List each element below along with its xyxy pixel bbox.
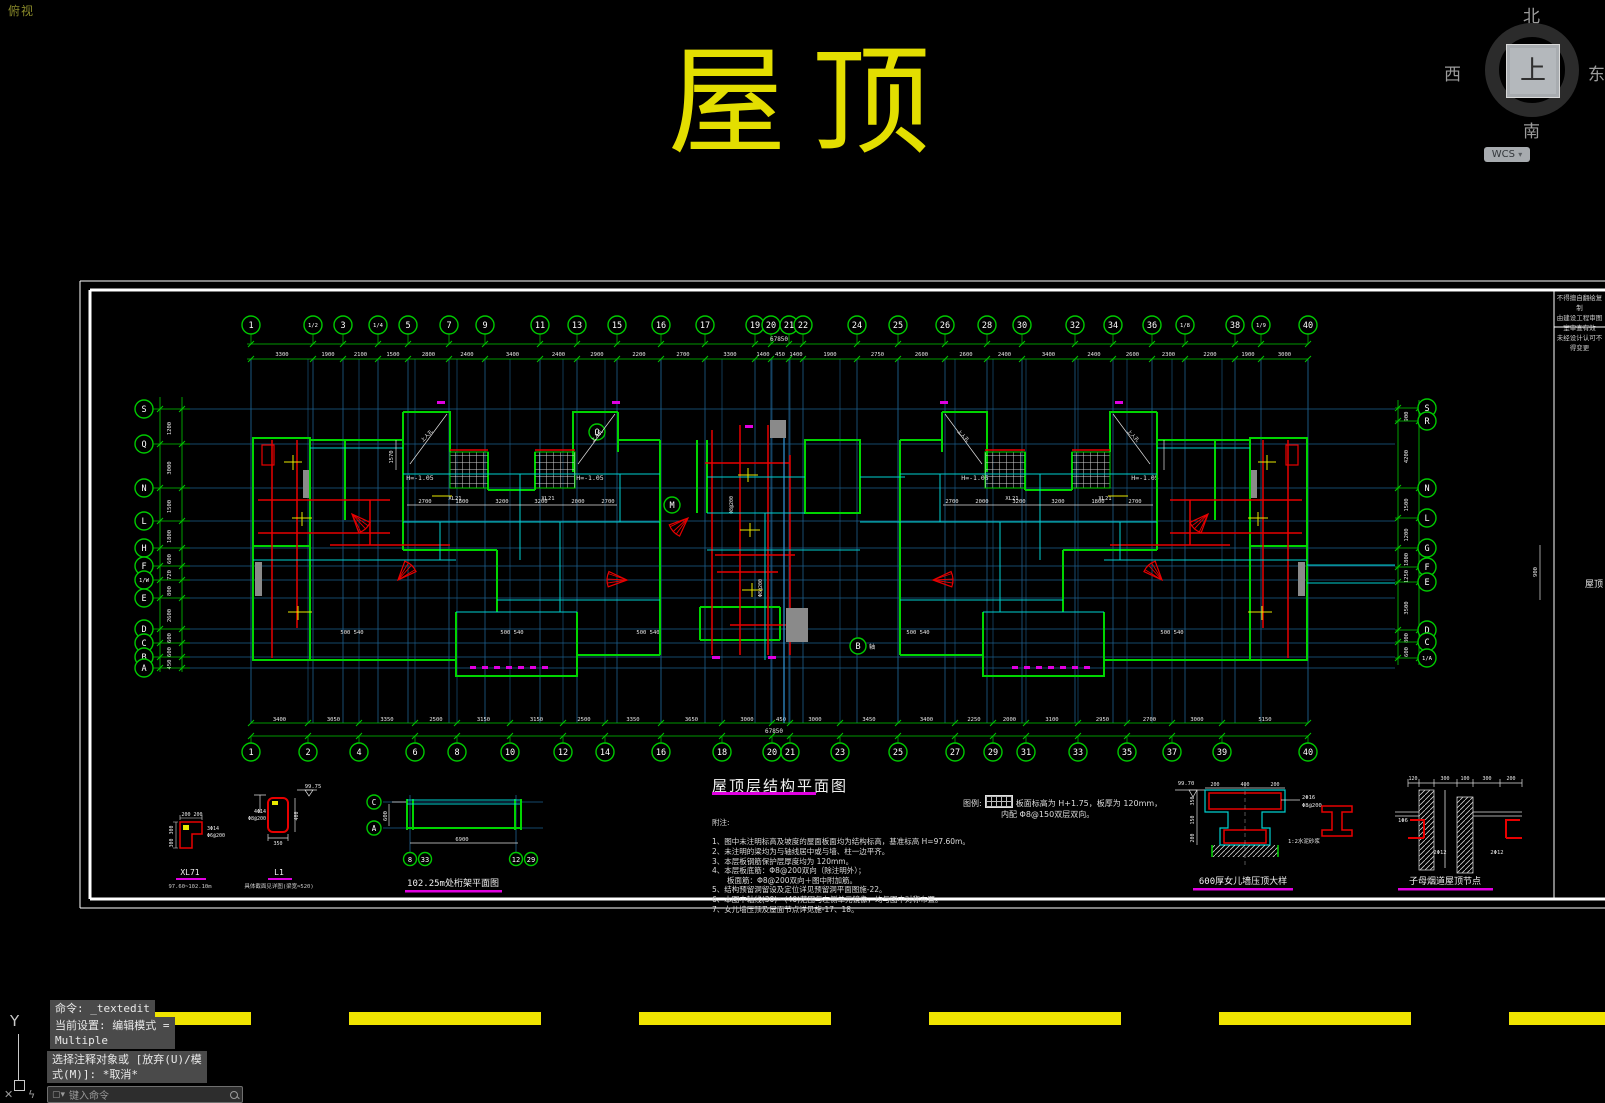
grid-bubble-label: 25 <box>893 321 903 331</box>
plan-annotation: H=-1.05 <box>1131 474 1158 482</box>
grid-bubble-label: 24 <box>852 321 862 331</box>
rebar-text: 2Φ16 <box>1302 795 1315 801</box>
grid-bubble-label: 1/W <box>139 578 150 584</box>
legend-line2: 内配 Φ8@150双层双向。 <box>1001 809 1162 820</box>
grid-bubble-label: 1 <box>248 748 253 758</box>
dim-text: 400 <box>1240 782 1249 788</box>
dim-text: 2250 <box>967 717 980 723</box>
grid-bubble-label: C <box>372 798 377 807</box>
command-history-text: 当前设置: 编辑模式 = <box>55 1019 170 1032</box>
dim-text: 2600 <box>167 609 173 622</box>
grid-bubble-label: B <box>855 642 860 652</box>
dim-text: 600 <box>383 811 389 821</box>
grid-bubble-label: 40 <box>1303 748 1313 758</box>
plan-title-underline <box>712 792 816 795</box>
grid-bubble-label: 1/2 <box>308 323 318 329</box>
grid-bubble-label: 22 <box>798 321 808 331</box>
rebar-text: Φ6@200 <box>207 833 225 839</box>
dim-text: 3050 <box>327 717 340 723</box>
detail-subtitle: 具体截面见详图(梁宽≈520) <box>244 882 313 890</box>
dim-text: 720 <box>167 570 173 580</box>
plan-annotation: 2000 <box>975 499 988 505</box>
grid-bubble-label: 34 <box>1108 321 1118 331</box>
dim-text: 2400 <box>1087 352 1100 358</box>
grid-bubble-label: 28 <box>982 321 992 331</box>
detail-title: 102.25m处桁架平面图 <box>407 877 499 889</box>
dim-text: 300 <box>169 838 175 847</box>
dim-text: 2100 <box>354 352 367 358</box>
center-core <box>667 420 905 723</box>
dim-text: 3450 <box>862 717 875 723</box>
grid-bubble-label: 16 <box>656 748 666 758</box>
yellow-dash-segment[interactable] <box>639 1012 831 1025</box>
grid-bubble-label: 29 <box>988 748 998 758</box>
grid-bubble-label: 21 <box>784 321 794 331</box>
yellow-dash-segment[interactable] <box>349 1012 541 1025</box>
grid-bubble-label: Q <box>141 440 146 450</box>
plan-annotation: 500 540 <box>906 630 929 636</box>
grid-bubble-label: 39 <box>1217 748 1227 758</box>
grid-bubble-label: M <box>669 501 674 511</box>
dim-text: 200 <box>181 812 190 818</box>
dim-text: 200 <box>1190 833 1196 842</box>
detail-truss: C A 8 33 12 29 6900 600 102.25m处桁架平面图 <box>367 795 543 893</box>
grid-bubble-label: N <box>1424 484 1429 494</box>
grid-bubble-label: 1/9 <box>1256 323 1266 329</box>
grid-bubble-label: 20 <box>767 748 777 758</box>
grid-bubble-label: 26 <box>940 321 950 331</box>
grid-bubble-label: 33 <box>1073 748 1083 758</box>
grid-bubble-label: 25 <box>893 748 903 758</box>
dim-text: 3000 <box>1190 717 1203 723</box>
dim-text: 300 <box>1482 776 1491 782</box>
command-prompt-line: 选择注释对象或 [放弃(U)/模式(M)]: *取消* <box>47 1051 207 1083</box>
dim-text: 3000 <box>740 717 753 723</box>
grid-bubble-label: L <box>1424 514 1429 524</box>
dim-text: 2600 <box>915 352 928 358</box>
dim-text: 1500 <box>386 352 399 358</box>
building-plan <box>253 401 1540 723</box>
dim-text: 450 <box>775 352 785 358</box>
grid-bubbles: 11/231/457911131516171920212224252628303… <box>135 316 1436 761</box>
legend-prefix: 图例: <box>963 799 982 808</box>
dim-text: 200 <box>1210 782 1219 788</box>
detail-title: XL71 <box>180 868 199 877</box>
dim-text: 600 <box>1404 647 1410 657</box>
detail-l1: 99.75 4Φ14 Φ8@200 350 400 L1 具体截面见详图(梁宽≈… <box>244 784 321 890</box>
dim-text: 1500 <box>167 500 173 513</box>
dim-text: 1800 <box>1404 553 1410 566</box>
dim-text: 3000 <box>1278 352 1291 358</box>
command-history-text: 选择注释对象或 [放弃(U)/模 <box>52 1053 202 1066</box>
detail-parapet: 99.70 200 400 200 350 150 200 2Φ16 Φ8@20… <box>1175 781 1352 891</box>
dim-text: 2600 <box>1126 352 1139 358</box>
grid-bubble-label: R <box>1424 417 1430 427</box>
grid-bubble-label: 33 <box>421 856 429 864</box>
dim-text: 300 <box>169 825 175 834</box>
dim-text: 2500 <box>429 717 442 723</box>
note-line: 3、本层板钢筋保护层厚度均为 120mm。 <box>712 857 992 867</box>
note-line: 板面筋：Φ8@200双向＋图中附加筋。 <box>712 876 992 886</box>
rebar-text: 2Φ12 <box>1433 850 1446 856</box>
plan-legend: 图例:板面标高为 H+1.75，板厚为 120mm， 内配 Φ8@150双层双向… <box>963 795 1162 820</box>
dim-text: 150 <box>1190 815 1196 824</box>
plan-annotation: 1570 <box>389 450 395 463</box>
dim-text: 1250 <box>1404 570 1410 583</box>
dim-text: 3400 <box>506 352 519 358</box>
dim-text: 300 <box>1440 776 1449 782</box>
grid-bubble-label: 10 <box>505 748 515 758</box>
dim-text: 3400 <box>920 717 933 723</box>
command-input[interactable]: ▢▾ 键入命令 <box>47 1086 243 1103</box>
dim-text: 2900 <box>590 352 603 358</box>
dim-text: 2700 <box>1143 717 1156 723</box>
grid-bubble-label: H <box>141 544 146 554</box>
dim-text: 2750 <box>871 352 884 358</box>
dim-text: 1400 <box>789 352 802 358</box>
dim-text: 350 <box>1190 796 1196 805</box>
overall-dim-text: 67850 <box>765 728 783 735</box>
dim-text: 1900 <box>321 352 334 358</box>
plan-annotation: 2000 <box>571 499 584 505</box>
dim-text: 3400 <box>273 717 286 723</box>
dim-text: 800 <box>1404 633 1410 643</box>
grid-bubble-label: 14 <box>600 748 610 758</box>
rebar-text: Φ8@200 <box>1302 803 1322 809</box>
dim-text: 100 <box>1460 776 1469 782</box>
note-line: 1、图中未注明标高及坡度的屋面板面均为结构标高，基准标高 H=97.60m。 <box>712 837 992 847</box>
dim-text: 800 <box>167 586 173 596</box>
dim-text: 3150 <box>530 717 543 723</box>
grid-bubble-label: 31 <box>1021 748 1031 758</box>
grid-bubble-label: L <box>141 517 146 527</box>
plan-annotation: 上人孔 <box>955 428 970 444</box>
notes-heading: 附注: <box>712 818 992 828</box>
plan-annotation: 1800 <box>1091 499 1104 505</box>
dim-text: 3000 <box>808 717 821 723</box>
grid-bubble-label: 21 <box>785 748 795 758</box>
dim-text: 3350 <box>380 717 393 723</box>
plan-annotation: 2700 <box>945 499 958 505</box>
detail-subtitle: 97.60~102.10m <box>168 884 212 890</box>
grid-bubble-label: 4 <box>356 748 361 758</box>
dim-text: 2800 <box>422 352 435 358</box>
titleblock-notes: 不得擅自翻绘复制 由建设工程审图室审查有效 未经设计认可不得变更 <box>1556 293 1603 353</box>
dim-text: 2000 <box>1003 717 1016 723</box>
detail-title: 600厚女儿墙压顶大样 <box>1199 875 1287 887</box>
grid-bubble-label: 23 <box>835 748 845 758</box>
grid-bubble-label: 32 <box>1070 321 1080 331</box>
close-icon[interactable]: ✕ <box>4 1088 13 1101</box>
grid-bubble-label: 29 <box>527 856 535 864</box>
note-text: 1:2水泥砂浆 <box>1288 837 1320 845</box>
grid-bubble-label: 7 <box>446 321 451 331</box>
detail-flue: 120 300 100 300 200 1Φ6 2Φ12 2Φ12 子母烟道屋顶… <box>1395 776 1522 891</box>
grid-bubble-label: E <box>1424 578 1429 588</box>
grid-bubble-label: 18 <box>717 748 727 758</box>
plan-annotation: 500 540 <box>500 630 523 636</box>
dim-text: 3650 <box>685 717 698 723</box>
command-history-line-1: 命令: _textedit <box>50 1000 155 1017</box>
plan-annotation: 500 540 <box>1160 630 1183 636</box>
plan-annotation: 2700 <box>418 499 431 505</box>
dim-text: 1800 <box>167 530 173 543</box>
autocad-viewport: { "app": { "view_label": "俯视", "drawing_… <box>0 0 1605 1102</box>
grid-bubble-label: 20 <box>766 321 776 331</box>
note-line: 5、结构预留洞留设及定位详见预留洞平面图施-22。 <box>712 885 992 895</box>
dim-text: 2400 <box>460 352 473 358</box>
command-history-text: Multiple <box>55 1034 108 1047</box>
search-icon[interactable] <box>230 1091 238 1099</box>
dim-text: 3150 <box>477 717 490 723</box>
grid-bubble-label: 19 <box>750 321 760 331</box>
grid-bubble-label: 13 <box>572 321 582 331</box>
plan-annotation: 3200 <box>1012 499 1025 505</box>
rebar-text: 4Φ14 <box>254 809 266 815</box>
elevation-text: 99.75 <box>305 784 322 790</box>
plan-annotation: 500 540 <box>340 630 363 636</box>
plan-annotation: 900 <box>1533 567 1539 577</box>
rebar-text: 3Φ14 <box>207 826 219 832</box>
rebar-text: Φ8@200 <box>248 816 266 822</box>
plan-annotation: Φ8@200 <box>758 579 764 597</box>
customize-icon[interactable]: ϟ <box>28 1088 35 1101</box>
plan-annotation: 3200 <box>495 499 508 505</box>
dim-text: 900 <box>1404 412 1410 422</box>
dim-text: 2300 <box>1162 352 1175 358</box>
plan-annotation: 3200 <box>1051 499 1064 505</box>
overall-dim-text: 67850 <box>770 336 788 343</box>
detail-xl71: 200 200 300 300 3Φ14 Φ6@200 XL71 97.60~1… <box>168 812 225 890</box>
dim-text: 3500 <box>1404 601 1410 614</box>
grid-bubble-label: S <box>141 405 146 415</box>
dim-text: 3300 <box>275 352 288 358</box>
cad-drawing-canvas[interactable]: 3300190021001500280024003400240029002200… <box>0 0 1605 1102</box>
plan-annotation: H=-1.05 <box>576 474 603 482</box>
command-input-bar[interactable]: ✕ ϟ ▢▾ 键入命令 <box>0 1086 300 1102</box>
dim-text: 120 <box>1408 776 1417 782</box>
dim-text: 1400 <box>756 352 769 358</box>
note-line: 6、本图中轴线(30)～(40)范围与左侧单元镜像，均与图中对称布置。 <box>712 895 992 905</box>
grid-bubble-label: 6 <box>412 748 417 758</box>
plan-annotation: 2700 <box>1128 499 1141 505</box>
dim-text: 1500 <box>1404 498 1410 511</box>
dim-text: 600 <box>167 554 173 564</box>
grid-bubble-label: G <box>1424 544 1429 554</box>
command-input-placeholder: 键入命令 <box>69 1087 109 1102</box>
grid-bubble-label: A <box>372 824 377 833</box>
grid-bubble-label: N <box>141 484 146 494</box>
grid-bubble-label: 37 <box>1167 748 1177 758</box>
recent-commands-icon[interactable]: ▢▾ <box>52 1090 65 1100</box>
dim-text: 5150 <box>1258 717 1271 723</box>
grid-bubble-label: 12 <box>558 748 568 758</box>
elevation-text: 99.70 <box>1178 781 1195 787</box>
dim-text: 4200 <box>1404 450 1410 463</box>
titleblock-line: 由建设工程审图室审查有效 <box>1556 313 1603 333</box>
grid-bubble-label: 15 <box>612 321 622 331</box>
dim-text: 350 <box>273 841 282 847</box>
rebar-text: 1Φ6 <box>1398 818 1408 824</box>
ucs-y-axis-label: Y <box>10 1012 19 1030</box>
plan-annotation: H=-1.05 <box>406 474 433 482</box>
dim-text: 3300 <box>723 352 736 358</box>
dim-text: 2400 <box>998 352 1011 358</box>
yellow-dash-segment[interactable] <box>1219 1012 1411 1025</box>
grid-bubble-label: 17 <box>700 321 710 331</box>
plan-annotation: 500 540 <box>636 630 659 636</box>
dim-text: 2600 <box>959 352 972 358</box>
dim-text: 2500 <box>577 717 590 723</box>
dim-text: 400 <box>294 811 300 820</box>
grid-bubble-label: F <box>1424 563 1429 573</box>
command-history-text: 式(M)]: *取消* <box>52 1068 138 1081</box>
plan-notes: 附注: 1、图中未注明标高及坡度的屋面板面均为结构标高，基准标高 H=97.60… <box>712 799 992 914</box>
dim-text: 2400 <box>552 352 565 358</box>
dim-text: 3350 <box>626 717 639 723</box>
dim-text: 1200 <box>167 422 173 435</box>
dim-text: 200 <box>1506 776 1515 782</box>
grid-bubble-label: A <box>141 664 146 674</box>
plan-annotation: 2700 <box>601 499 614 505</box>
note-line: 4、本层板底筋：Φ8@200双向（除注明外）； <box>712 866 992 876</box>
dim-text: 2200 <box>1203 352 1216 358</box>
dim-text: 600 <box>167 633 173 643</box>
dim-text: 1200 <box>1404 528 1410 541</box>
dim-text: 200 <box>1270 782 1279 788</box>
grid-bubble-label: 30 <box>1017 321 1027 331</box>
grid-bubble-label: 2 <box>305 748 310 758</box>
grid-bubble-label: C <box>1424 638 1429 648</box>
dim-text: 2700 <box>676 352 689 358</box>
grid-bubble-label: E <box>141 594 146 604</box>
dim-text: 3000 <box>167 461 173 474</box>
dim-text: 3100 <box>1045 717 1058 723</box>
grid-bubble-label: 27 <box>950 748 960 758</box>
dim-text: 1900 <box>823 352 836 358</box>
command-history-line-2: 当前设置: 编辑模式 =Multiple <box>50 1017 175 1049</box>
grid-bubble-label: 1 <box>248 321 253 331</box>
dim-text: 1900 <box>1241 352 1254 358</box>
dim-text: 2950 <box>1096 717 1109 723</box>
grid-bubble-label: 16 <box>656 321 666 331</box>
dim-text: 3400 <box>1042 352 1055 358</box>
grid-bubble-label: 40 <box>1303 321 1313 331</box>
plan-annotation: 3200 <box>534 499 547 505</box>
grid-bubble-label: 8 <box>408 856 412 864</box>
grid-bubble-label: 3 <box>340 321 345 331</box>
grid-bubble-label: 35 <box>1122 748 1132 758</box>
titleblock-line: 不得擅自翻绘复制 <box>1556 293 1603 313</box>
grid-bubble-label: 1/A <box>1422 656 1433 662</box>
detail-title: L1 <box>274 868 284 877</box>
grid-bubble-label: 11 <box>535 321 545 331</box>
grid-bubble-label: 12 <box>512 856 520 864</box>
grid-bubble-label: 1/8 <box>1180 323 1190 329</box>
note-line: 2、未注明的梁均为与轴线居中或与墙、柱一边平齐。 <box>712 847 992 857</box>
rebar-text: 2Φ12 <box>1490 850 1503 856</box>
grid-bubble-label: 1/4 <box>373 323 384 329</box>
detail-title: 子母烟道屋顶节点 <box>1409 875 1481 887</box>
grid-bubble-label: 36 <box>1147 321 1157 331</box>
yellow-dash-segment[interactable] <box>1509 1012 1605 1025</box>
plan-annotation: 轴 <box>869 643 875 651</box>
plan-annotation: Φ8@200 <box>729 496 735 514</box>
dim-text: 600 <box>167 647 173 657</box>
note-line: 7、女儿墙压顶及屋面节点详见施-17、18。 <box>712 905 992 915</box>
yellow-dash-segment[interactable] <box>929 1012 1121 1025</box>
ucs-y-axis-line <box>18 1034 19 1080</box>
grid-bubble-label: 38 <box>1230 321 1240 331</box>
titleblock-sheet-name: 屋顶 <box>1585 577 1603 590</box>
titleblock-line: 未经设计认可不得变更 <box>1556 333 1603 353</box>
plan-annotation: 1800 <box>455 499 468 505</box>
grid-bubble-label: 9 <box>482 321 487 331</box>
dim-text: 200 <box>193 812 202 818</box>
dim-text: 6900 <box>455 837 468 843</box>
slab-hatch-icon <box>985 795 1013 808</box>
grid-bubble-label: 5 <box>405 321 410 331</box>
legend-line1: 板面标高为 H+1.75，板厚为 120mm， <box>1016 799 1162 808</box>
grid-bubble-label: 8 <box>454 748 459 758</box>
dim-text: 2200 <box>632 352 645 358</box>
